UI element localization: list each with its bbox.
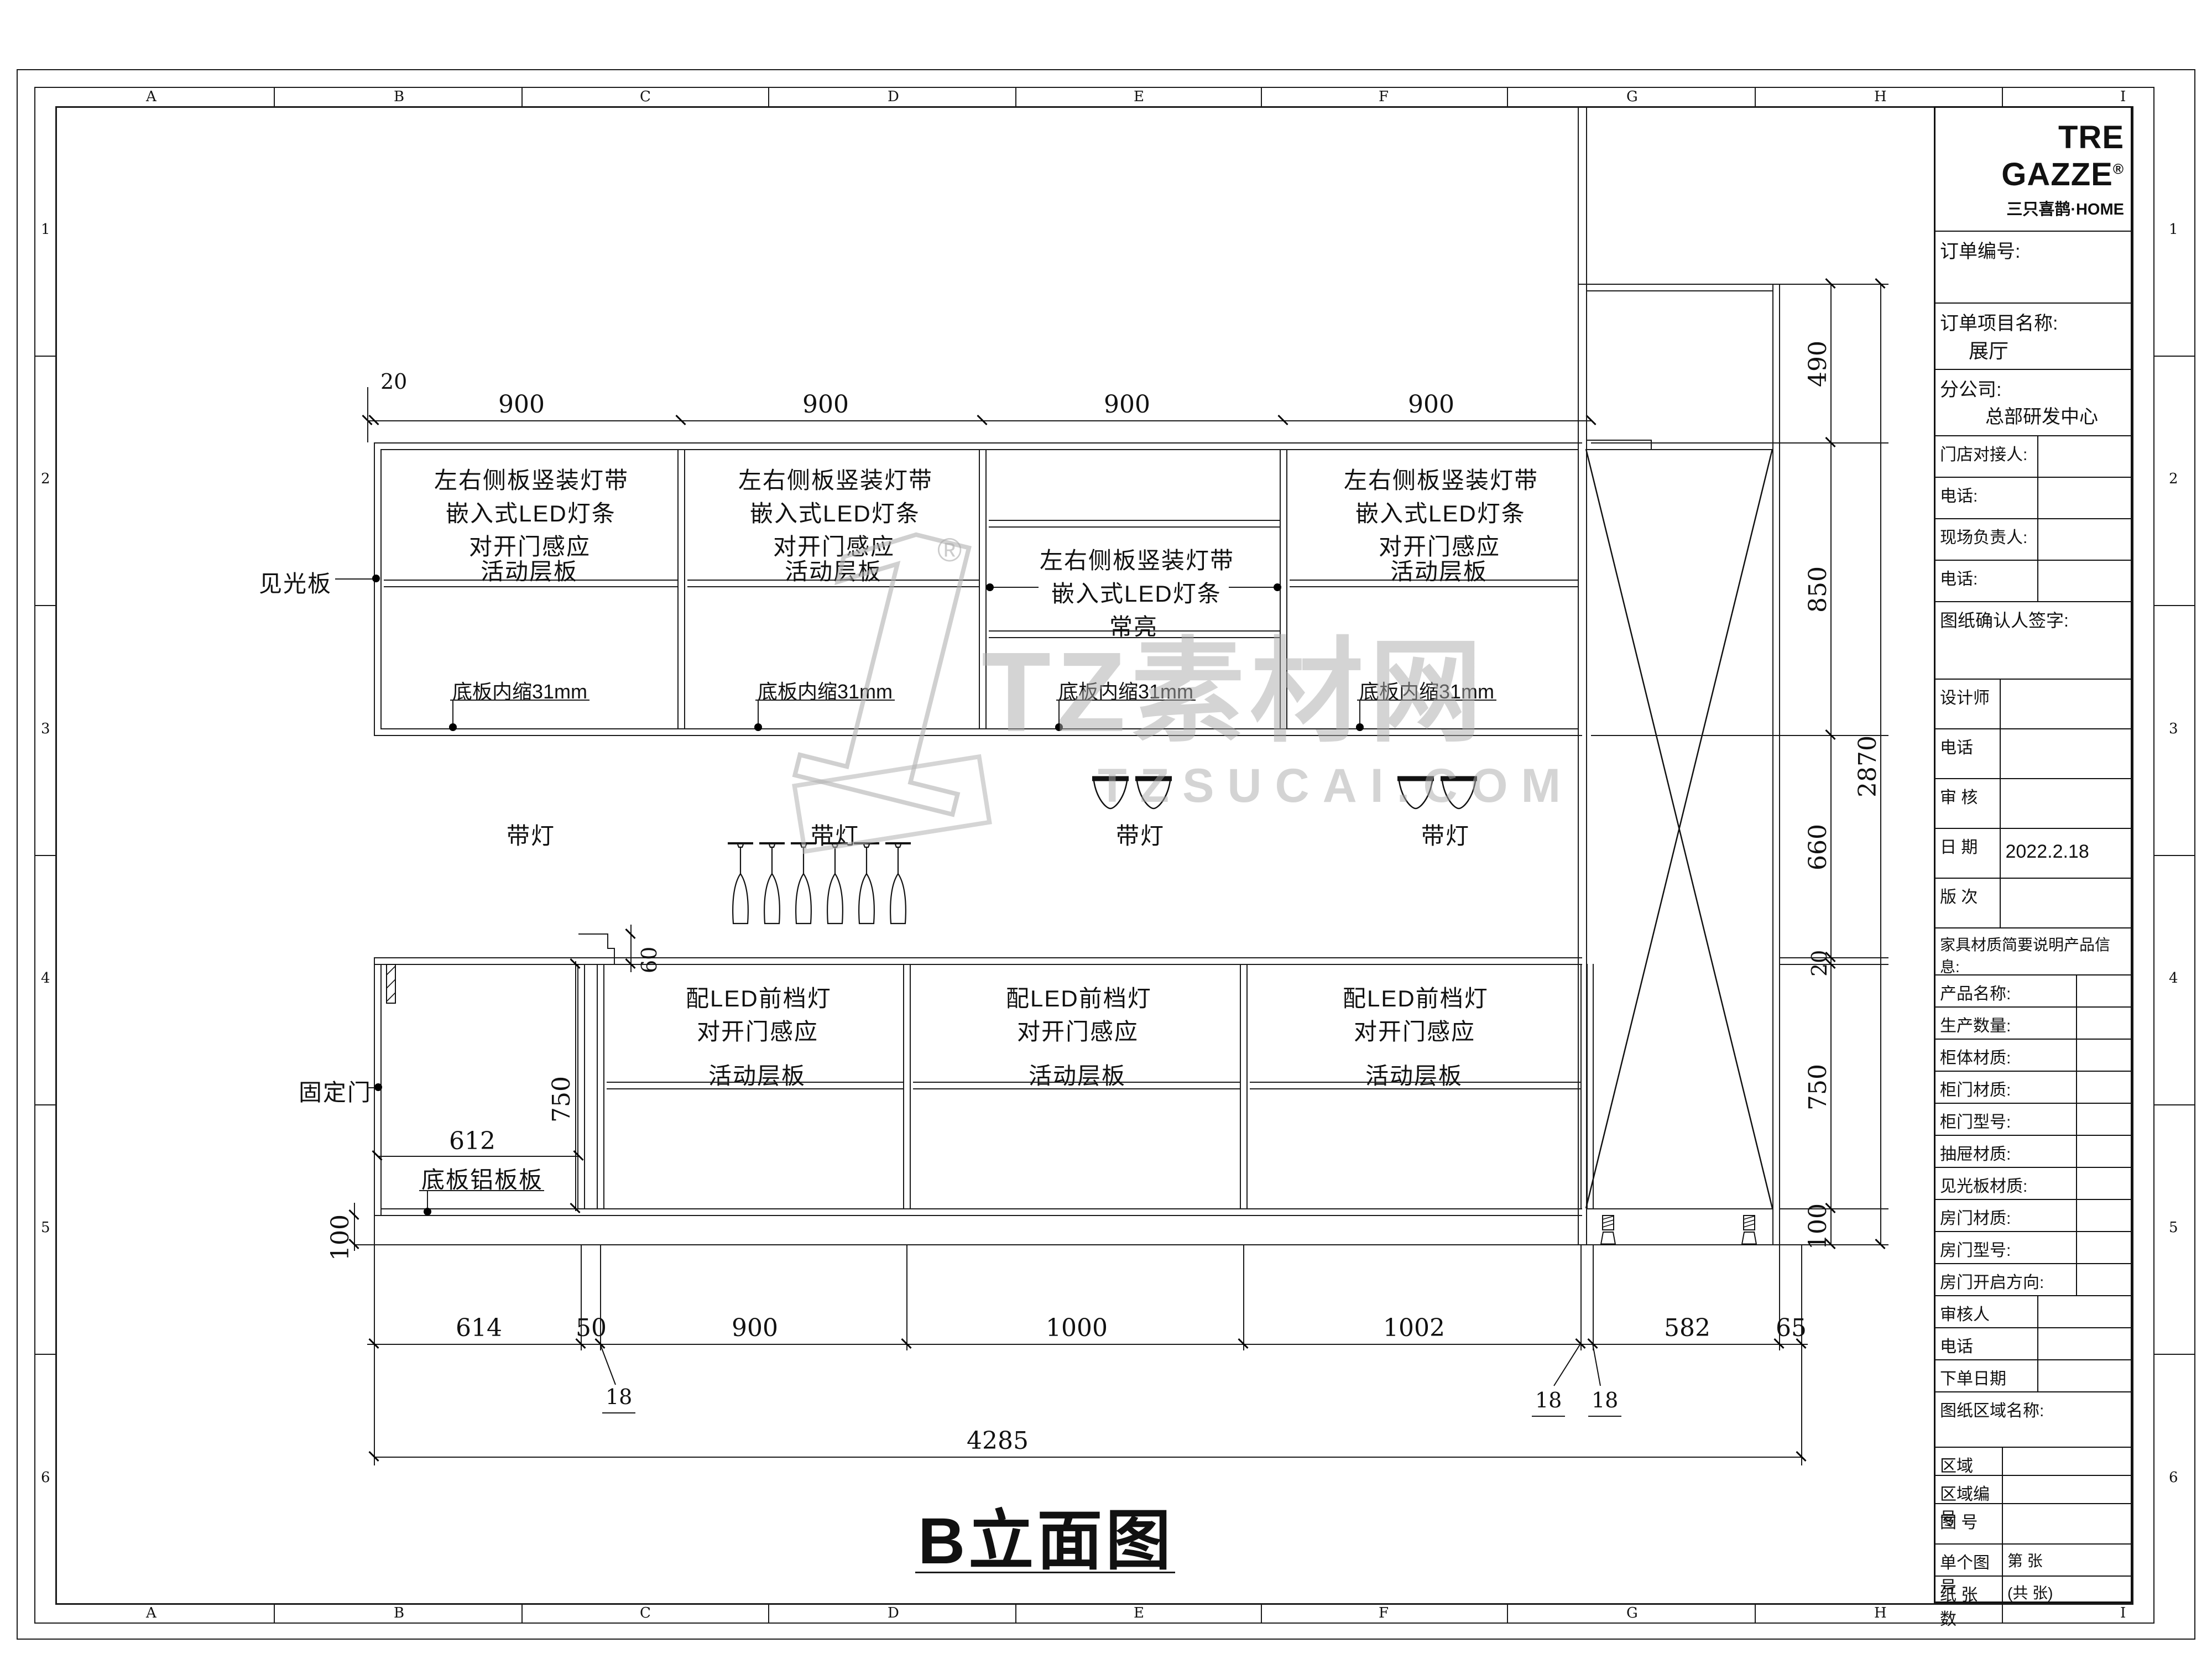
note-text: 嵌入式LED灯条 — [1355, 495, 1526, 529]
zone-divider — [521, 87, 523, 106]
dim-text: 614 — [456, 1314, 502, 1342]
field-sign: 图纸确认人签字: — [1936, 602, 2131, 680]
field-value — [2037, 1296, 2131, 1327]
cabinet-line — [1779, 284, 1780, 1244]
zone-divider — [274, 1603, 275, 1623]
zone-letter: I — [2120, 88, 2126, 105]
cabinet-line — [577, 964, 578, 1208]
field-phone3: 电话 — [1936, 729, 2131, 779]
ext-line — [1593, 1245, 1594, 1350]
field-label: 房门型号: — [1936, 1232, 2076, 1263]
zone-letter: I — [2120, 1605, 2126, 1621]
zone-letter: G — [1626, 88, 1638, 105]
field-value — [2076, 1136, 2131, 1167]
door-x-brace — [1586, 449, 1772, 1208]
dim-line — [377, 1156, 578, 1157]
logo: TRE GAZZE® 三只喜鹊·HOME — [1936, 119, 2131, 220]
dim-text: 900 — [1408, 390, 1454, 419]
frame-bottom — [55, 1603, 2133, 1605]
zone-letter: E — [1134, 1605, 1144, 1621]
field-material: 生产数量: — [1936, 1008, 2131, 1040]
field-label: 生产数量: — [1936, 1008, 2076, 1039]
field-label: 电话: — [1936, 561, 2037, 601]
watermark-site: TZSUCAI.COM — [1098, 759, 1574, 813]
field-single-sheet: 单个图号 第 张 — [1936, 1545, 2131, 1577]
field-value — [2076, 1104, 2131, 1135]
zone-divider — [34, 855, 55, 856]
field-material: 抽屉材质: — [1936, 1136, 2131, 1168]
field-value — [2002, 1504, 2131, 1543]
zone-letter: G — [1626, 1605, 1638, 1621]
cabinet-line — [903, 964, 904, 1208]
adjustable-foot-icon — [1739, 1215, 1759, 1246]
zone-divider — [521, 1603, 523, 1623]
adjustable-foot-icon — [1598, 1215, 1618, 1246]
dim-text: 490 — [1804, 341, 1832, 387]
field-value — [2076, 1264, 2131, 1295]
shelf-line — [1250, 1088, 1580, 1089]
field-label: 分公司: — [1936, 370, 2131, 401]
dim-text: 100 — [326, 1214, 354, 1261]
zone-number: 4 — [2169, 970, 2178, 987]
zone-number: 6 — [41, 1469, 50, 1486]
watermark-brand: TZ素材网 — [982, 600, 1488, 764]
field-material: 房门材质: — [1936, 1200, 2131, 1232]
field-phone1: 电话: — [1936, 478, 2131, 519]
zone-divider — [2153, 356, 2194, 357]
dim-text: 65 — [1776, 1314, 1807, 1342]
field-label: 柜体材质: — [1936, 1040, 2076, 1071]
dim-text: 1002 — [1383, 1314, 1445, 1342]
field-value — [2037, 1360, 2131, 1391]
zone-letter: H — [1874, 88, 1887, 105]
cabinet-line — [380, 1208, 1582, 1209]
field-label: 家具材质简要说明产品信息: — [1936, 928, 2131, 974]
field-label: 电话: — [1936, 478, 2037, 518]
field-value — [2000, 729, 2131, 778]
zone-letter: E — [1134, 88, 1144, 105]
shelf-line — [1250, 1082, 1580, 1083]
zone-divider — [1755, 1603, 1756, 1623]
dim-line — [367, 420, 1591, 421]
cabinet-line — [684, 449, 685, 728]
zone-divider — [1261, 87, 1262, 106]
outer-border-bottom — [17, 1639, 2195, 1640]
field-label: 柜门型号: — [1936, 1104, 2076, 1135]
zone-divider — [768, 1603, 769, 1623]
field-site-manager: 现场负责人: — [1936, 519, 2131, 561]
logo-text: TRE GAZZE — [2001, 119, 2124, 192]
field-value: 总部研发中心 — [1936, 401, 2131, 429]
zone-divider — [1507, 1603, 1508, 1623]
dim-text: 750 — [547, 1076, 576, 1123]
field-label: 图 号 — [1936, 1504, 2002, 1543]
ext-line — [1243, 1245, 1244, 1350]
field-material: 房门开启方向: — [1936, 1264, 2131, 1296]
field-value — [2076, 975, 2131, 1006]
note-text: 嵌入式LED灯条 — [446, 495, 616, 529]
field-branch: 分公司: 总部研发中心 — [1936, 370, 2131, 436]
ext-line — [367, 387, 368, 442]
dim-text: 50 — [576, 1314, 607, 1342]
dim-text: 4285 — [967, 1427, 1029, 1455]
step-line — [578, 933, 608, 935]
field-fig-no: 图 号 — [1936, 1504, 2131, 1545]
field-value: (共 张) — [2002, 1577, 2131, 1605]
field-value — [2000, 680, 2131, 728]
zone-strip-top-line — [34, 87, 2153, 88]
leader-underline — [450, 700, 589, 701]
leader-line — [594, 1344, 619, 1388]
step-line — [1586, 440, 1651, 441]
leader-dot — [374, 1083, 382, 1091]
logo-subtext: 三只喜鹊·HOME — [1936, 196, 2124, 220]
dim-text: 900 — [1104, 390, 1150, 419]
field-order-date: 下单日期 — [1936, 1360, 2131, 1392]
label-with-light: 带灯 — [1116, 817, 1165, 851]
zone-letter: C — [640, 1605, 651, 1621]
cabinet-line — [374, 442, 1582, 444]
field-label: 房门材质: — [1936, 1200, 2076, 1231]
zone-divider — [2002, 87, 2003, 106]
field-review: 审 核 — [1936, 779, 2131, 829]
note-text: 活动层板 — [1390, 553, 1488, 587]
title-block: TRE GAZZE® 三只喜鹊·HOME 订单编号: 订单项目名称: 展厅 分公… — [1934, 106, 2132, 1603]
shelf-line — [913, 1082, 1240, 1083]
field-date: 日 期 2022.2.18 — [1936, 829, 2131, 879]
field-zone: 区域 — [1936, 1448, 2131, 1476]
ext-line — [1591, 735, 1888, 736]
note-text: 对开门感应 — [697, 1013, 818, 1047]
cabinet-line — [1246, 964, 1248, 1208]
frame-top — [55, 106, 2133, 108]
zone-number: 3 — [2169, 721, 2178, 737]
note-text: 配LED前档灯 — [1006, 980, 1152, 1014]
cabinet-line — [380, 449, 382, 728]
field-label: 电话 — [1936, 729, 2000, 778]
zone-divider — [768, 87, 769, 106]
outer-border-top — [17, 69, 2195, 70]
note-text: 对开门感应 — [1017, 1013, 1139, 1047]
field-value — [2037, 561, 2131, 601]
leader-line — [1229, 587, 1276, 588]
zone-divider — [34, 356, 55, 357]
cabinet-line — [1586, 290, 1772, 291]
zone-number: 2 — [2169, 471, 2178, 487]
field-value: 2022.2.18 — [2000, 829, 2131, 878]
zone-letter: A — [146, 1605, 156, 1621]
ext-line — [374, 1245, 375, 1465]
logo-registered-icon: ® — [2113, 161, 2124, 178]
drawing-title: B立面图 — [918, 1488, 1174, 1582]
field-value — [2037, 478, 2131, 518]
zone-divider — [1507, 87, 1508, 106]
cabinet-line — [1772, 284, 1773, 1244]
field-store-contact: 门店对接人: — [1936, 436, 2131, 478]
label-with-light: 带灯 — [507, 817, 555, 851]
field-label: 电话 — [1936, 1328, 2037, 1359]
field-label: 日 期 — [1936, 829, 2000, 878]
shelf-line — [607, 1082, 903, 1083]
zone-number: 1 — [41, 221, 50, 238]
field-value — [2076, 1200, 2131, 1231]
dim-text: 20 — [1807, 950, 1832, 977]
zone-number: 6 — [2169, 1469, 2178, 1486]
shelf-line — [607, 1088, 903, 1089]
dim-text: 100 — [1804, 1203, 1832, 1250]
cabinet-line — [374, 1215, 1582, 1216]
cabinet-line — [584, 964, 585, 1208]
materials-header: 家具材质简要说明产品信息: — [1936, 928, 2131, 975]
dim-text: 612 — [449, 1127, 495, 1155]
zone-divider — [34, 1104, 55, 1105]
zone-letter: C — [640, 88, 651, 105]
ext-line — [1580, 1245, 1582, 1350]
frame-left — [55, 106, 57, 1605]
zone-divider — [2153, 855, 2194, 856]
cabinet-line — [374, 442, 375, 735]
field-label: 订单项目名称: — [1936, 304, 2131, 335]
note-text: 活动层板 — [708, 1057, 806, 1091]
field-phone2: 电话: — [1936, 561, 2131, 602]
zone-letter: F — [1379, 1605, 1389, 1621]
zone-letter: B — [394, 88, 404, 105]
zone-letter: D — [888, 88, 899, 105]
field-label: 下单日期 — [1936, 1360, 2037, 1391]
zone-divider — [1015, 1603, 1016, 1623]
note-text: 活动层板 — [1029, 1057, 1126, 1091]
field-value — [2076, 1232, 2131, 1263]
zone-number: 4 — [41, 970, 50, 987]
field-label: 房门开启方向: — [1936, 1264, 2076, 1295]
field-label: 审 核 — [1936, 779, 2000, 828]
ext-line — [1779, 957, 1888, 958]
zone-divider — [1015, 87, 1016, 106]
field-material: 柜门材质: — [1936, 1072, 2131, 1104]
step-line — [614, 948, 615, 964]
zone-divider — [2153, 1354, 2194, 1355]
outer-border-left — [17, 69, 18, 1640]
dim-text: 900 — [498, 390, 545, 419]
dim-underline — [1588, 1416, 1621, 1417]
zone-letter: F — [1379, 88, 1389, 105]
field-value — [2000, 879, 2131, 927]
zone-number: 3 — [41, 721, 50, 737]
step-line — [1651, 440, 1652, 449]
zone-divider — [2153, 1104, 2194, 1105]
field-value — [2037, 519, 2131, 560]
leader-underline — [419, 1190, 544, 1191]
dim-underline — [1532, 1416, 1565, 1417]
zone-letter: B — [394, 1605, 404, 1621]
field-version: 版 次 — [1936, 879, 2131, 928]
field-material: 产品名称: — [1936, 975, 2131, 1008]
leader-dot — [424, 1208, 431, 1215]
ext-line — [1779, 284, 1888, 285]
zone-letter: H — [1874, 1605, 1887, 1621]
dim-line — [374, 1457, 1801, 1458]
field-label: 见光板材质: — [1936, 1168, 2076, 1199]
field-label: 现场负责人: — [1936, 519, 2037, 560]
field-label: 区域 — [1936, 1448, 2002, 1475]
ext-line — [1779, 1208, 1888, 1209]
ext-line — [1591, 442, 1888, 444]
shelf-line — [913, 1088, 1240, 1089]
dim-text: 750 — [1804, 1064, 1832, 1110]
field-value: 第 张 — [2002, 1545, 2131, 1575]
wall-line — [1578, 108, 1579, 1244]
field-value — [2076, 1168, 2131, 1199]
zone-divider — [274, 87, 275, 106]
dim-text: 18 — [1535, 1388, 1562, 1412]
field-value: 展厅 — [1936, 335, 2131, 364]
ext-line — [906, 1245, 907, 1350]
field-material: 柜体材质: — [1936, 1040, 2131, 1072]
field-sheet-count: 纸 张 数 (共 张) — [1936, 1577, 2131, 1605]
field-label: 门店对接人: — [1936, 436, 2037, 477]
step-line — [607, 933, 608, 949]
note-text: 配LED前档灯 — [1343, 980, 1489, 1014]
field-project: 订单项目名称: 展厅 — [1936, 304, 2131, 370]
zone-divider — [1755, 87, 1756, 106]
dim-text: 582 — [1664, 1314, 1710, 1342]
title-block-logo-cell: TRE GAZZE® 三只喜鹊·HOME — [1936, 108, 2131, 232]
dim-text: 18 — [606, 1385, 632, 1409]
ext-line — [1779, 964, 1888, 965]
watermark-reg: ® — [937, 531, 962, 569]
leader-line — [1537, 1344, 1609, 1389]
leader-dot — [1274, 583, 1281, 591]
field-label: 柜门材质: — [1936, 1072, 2076, 1103]
leader-dot — [372, 575, 380, 582]
note-text: 活动层板 — [481, 553, 578, 587]
zone-number: 1 — [2169, 221, 2178, 238]
field-label: 抽屉材质: — [1936, 1136, 2076, 1167]
zone-letter: A — [146, 88, 156, 105]
field-material: 柜门型号: — [1936, 1104, 2131, 1136]
cabinet-line — [1586, 1208, 1772, 1209]
dim-text: 60 — [637, 947, 661, 973]
dim-text: 2870 — [1854, 735, 1882, 797]
field-area-name: 图纸区域名称: — [1936, 1392, 2131, 1448]
field-label: 设计师 — [1936, 680, 2000, 728]
cabinet-line — [597, 964, 598, 1208]
note-text: 配LED前档灯 — [686, 980, 832, 1014]
field-label: 版 次 — [1936, 879, 2000, 927]
zone-letter: D — [888, 1605, 899, 1621]
dim-text: 900 — [802, 390, 849, 419]
field-material: 见光板材质: — [1936, 1168, 2131, 1200]
field-label: 审核人 — [1936, 1296, 2037, 1327]
field-order-no: 订单编号: — [1936, 232, 2131, 304]
field-value — [2000, 779, 2131, 828]
field-material: 房门型号: — [1936, 1232, 2131, 1264]
zone-divider — [34, 1354, 55, 1355]
outer-border-right — [2194, 69, 2195, 1640]
dim-text: 850 — [1804, 566, 1832, 613]
note-text: 对开门感应 — [1354, 1013, 1475, 1047]
label-visible-panel: 见光板 — [259, 565, 332, 599]
field-value — [2076, 1072, 2131, 1103]
field-value — [2037, 1328, 2131, 1359]
counter-line — [374, 964, 1582, 965]
note-text: 左右侧板竖装灯带 — [434, 462, 629, 495]
leader-dot — [449, 723, 457, 731]
field-value — [2002, 1476, 2131, 1503]
zone-number: 5 — [41, 1219, 50, 1236]
field-phone4: 电话 — [1936, 1328, 2131, 1360]
cabinet-line — [1240, 964, 1241, 1208]
field-value — [2076, 1040, 2131, 1071]
zone-number: 5 — [2169, 1219, 2178, 1236]
field-label: 单个图号 — [1936, 1545, 2002, 1575]
dim-text: 18 — [1592, 1388, 1618, 1412]
drawing-title-underline — [915, 1572, 1175, 1573]
zone-number: 2 — [41, 471, 50, 487]
field-label: 区域编号 — [1936, 1476, 2002, 1503]
cabinet-line — [677, 449, 679, 728]
zone-divider — [34, 605, 55, 606]
field-label: 订单编号: — [1936, 232, 2023, 302]
field-reviewer: 审核人 — [1936, 1296, 2131, 1328]
field-zone-no: 区域编号 — [1936, 1476, 2131, 1504]
field-label: 图纸区域名称: — [1936, 1392, 2047, 1447]
note-text: 左右侧板竖装灯带 — [1040, 542, 1234, 576]
dim-text: 1000 — [1046, 1314, 1108, 1342]
door-hatch — [386, 964, 396, 1004]
zone-divider — [1261, 1603, 1262, 1623]
cabinet-line — [1580, 964, 1582, 1208]
field-value — [2002, 1448, 2131, 1475]
ext-line — [1801, 1245, 1802, 1465]
cabinet-line — [1578, 284, 1779, 285]
counter-line — [374, 957, 1582, 958]
note-text: 左右侧板竖装灯带 — [1344, 462, 1538, 495]
label-with-light: 带灯 — [1421, 817, 1470, 851]
zone-strip-bottom-line — [34, 1623, 2153, 1624]
cabinet-line — [603, 964, 604, 1208]
field-label: 纸 张 数 — [1936, 1577, 2002, 1605]
leader-line — [335, 578, 376, 580]
cabinet-line — [910, 964, 911, 1208]
field-designer: 设计师 — [1936, 680, 2131, 729]
field-value — [2076, 1008, 2131, 1039]
dim-underline — [602, 1412, 635, 1413]
dim-text: 660 — [1804, 824, 1832, 870]
field-label: 图纸确认人签字: — [1936, 602, 2072, 679]
zone-divider — [2153, 605, 2194, 606]
cabinet-line — [374, 957, 375, 1244]
label-fixed-door: 固定门 — [299, 1074, 372, 1108]
cad-sheet: A B C D E F G H I A B C D E F G H I 1 2 … — [0, 0, 2212, 1659]
dim-text: 900 — [732, 1314, 778, 1342]
note-text: 活动层板 — [1365, 1057, 1463, 1091]
zone-divider — [2002, 1603, 2003, 1623]
dim-text: 20 — [380, 369, 407, 394]
field-value — [2037, 436, 2131, 477]
field-label: 产品名称: — [1936, 975, 2076, 1006]
